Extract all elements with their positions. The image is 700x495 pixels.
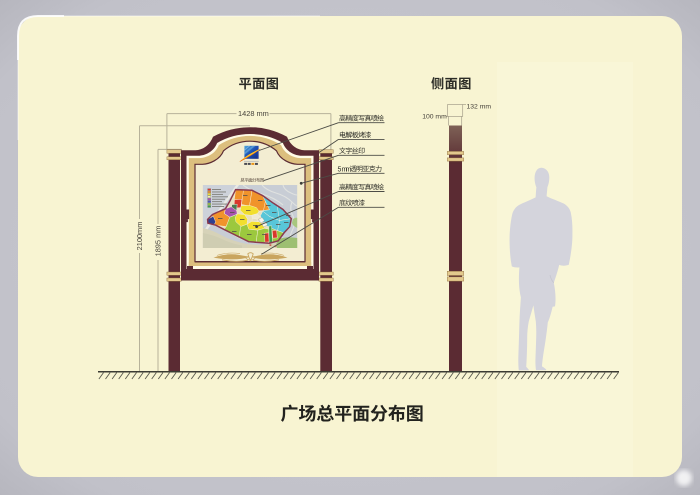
svg-text:100 mm: 100 mm xyxy=(422,113,447,120)
svg-text:m: m xyxy=(346,166,352,173)
svg-text:2100mm: 2100mm xyxy=(135,222,144,251)
svg-text:1895 mm: 1895 mm xyxy=(153,226,162,257)
svg-text:132 mm: 132 mm xyxy=(467,104,492,111)
svg-text:1428 mm: 1428 mm xyxy=(238,109,269,118)
